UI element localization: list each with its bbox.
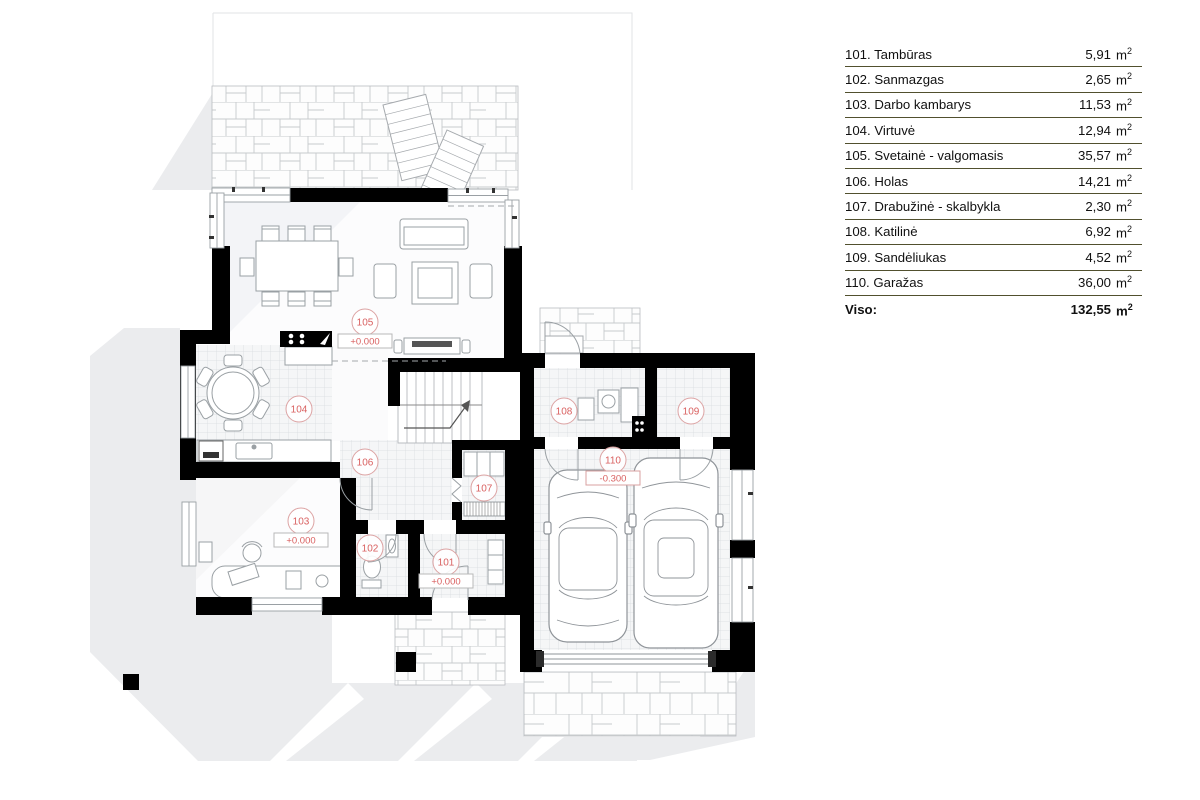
- room-area: 5,91: [1085, 48, 1111, 61]
- cars: [544, 458, 723, 648]
- room-label-107: 107: [471, 475, 497, 501]
- area-unit: m2: [1111, 225, 1142, 240]
- room-area: 36,00: [1078, 276, 1111, 289]
- room-label-109: 109: [678, 398, 704, 424]
- room-number-103: 103: [293, 517, 310, 528]
- room-area: 35,57: [1078, 149, 1111, 162]
- car-1: [544, 470, 632, 642]
- garage-door: [536, 651, 716, 667]
- room-name: 102. Sanmazgas: [845, 73, 944, 86]
- area-unit: m2: [1111, 275, 1142, 290]
- window-office-left: [182, 502, 196, 566]
- driveway: [524, 672, 736, 736]
- elevation-105: +0.000: [350, 337, 379, 348]
- area-unit: m2: [1111, 174, 1142, 189]
- room-name: 105. Svetainė - valgomasis: [845, 149, 1003, 162]
- area-unit: m2: [1111, 303, 1142, 318]
- room-number-102: 102: [362, 544, 379, 555]
- room-label-108: 108: [551, 398, 577, 424]
- room-area: 12,94: [1078, 124, 1111, 137]
- room-number-101: 101: [438, 558, 455, 569]
- area-table: 101. Tambūras 5,91 m2 102. Sanmazgas 2,6…: [845, 42, 1142, 324]
- room-name: 101. Tambūras: [845, 48, 932, 61]
- area-table-row: 109. Sandėliukas 4,52 m2: [845, 245, 1142, 270]
- room-number-107: 107: [476, 484, 493, 495]
- room-name: 106. Holas: [845, 175, 908, 188]
- area-unit: m2: [1111, 98, 1142, 113]
- stairs: [398, 368, 482, 443]
- room-area: 6,92: [1085, 225, 1111, 238]
- area-table-row: 106. Holas 14,21 m2: [845, 169, 1142, 194]
- area-table-row: 107. Drabužinė - skalbykla 2,30 m2: [845, 194, 1142, 219]
- window-living-left: [210, 193, 224, 248]
- room-number-110: 110: [605, 456, 621, 467]
- door-bifold-107: [452, 478, 461, 502]
- car-2: [629, 458, 723, 648]
- window-kitchen: [181, 366, 195, 438]
- window-garage-2: [732, 558, 753, 622]
- window-living-corner-right: [505, 200, 519, 248]
- area-table-row: 104. Virtuvė 12,94 m2: [845, 118, 1142, 143]
- room-number-108: 108: [556, 407, 573, 418]
- room-label-106: 106: [352, 449, 378, 475]
- total-area: 132,55: [1071, 303, 1111, 316]
- elevation-110: -0.300: [600, 474, 627, 485]
- room-number-109: 109: [683, 407, 700, 418]
- elevation-101: +0.000: [431, 577, 460, 588]
- room-area: 2,30: [1085, 200, 1111, 213]
- floor-plan-page: 101 +0.000 102 103 +0.000 104 105 +0.000…: [0, 0, 1200, 800]
- terrace-top: [212, 86, 518, 190]
- room-name: 103. Darbo kambarys: [845, 98, 971, 111]
- room-number-104: 104: [291, 405, 308, 416]
- room-name: 108. Katilinė: [845, 225, 918, 238]
- area-unit: m2: [1111, 199, 1142, 214]
- total-label: Viso:: [845, 303, 877, 316]
- area-table-row: 102. Sanmazgas 2,65 m2: [845, 67, 1142, 92]
- area-unit: m2: [1111, 148, 1142, 163]
- room-label-102: 102: [357, 535, 383, 561]
- entry-closet: [488, 540, 503, 584]
- area-unit: m2: [1111, 72, 1142, 87]
- elevation-103: +0.000: [286, 536, 315, 547]
- room-area: 11,53: [1079, 98, 1111, 111]
- area-table-row: 101. Tambūras 5,91 m2: [845, 42, 1142, 67]
- area-table-row: 103. Darbo kambarys 11,53 m2: [845, 93, 1142, 118]
- room-name: 104. Virtuvė: [845, 124, 915, 137]
- room-name: 107. Drabužinė - skalbykla: [845, 200, 1000, 213]
- room-area: 4,52: [1085, 251, 1111, 264]
- window-garage-1: [732, 470, 753, 540]
- room-name: 110. Garažas: [845, 276, 923, 289]
- area-unit: m2: [1111, 47, 1142, 62]
- back-porch: [540, 308, 640, 354]
- area-table-total-row: Viso: 132,55 m2: [845, 296, 1142, 324]
- room-number-106: 106: [357, 458, 374, 469]
- area-table-row: 110. Garažas 36,00 m2: [845, 271, 1142, 296]
- area-table-row: 105. Svetainė - valgomasis 35,57 m2: [845, 144, 1142, 169]
- area-table-row: 108. Katilinė 6,92 m2: [845, 220, 1142, 245]
- entry-porch: [395, 612, 505, 685]
- room-label-104: 104: [286, 396, 312, 422]
- area-unit: m2: [1111, 123, 1142, 138]
- window-living-corner-top: [448, 189, 508, 202]
- room-area: 14,21: [1078, 175, 1111, 188]
- room-number-105: 105: [357, 318, 374, 329]
- window-office-bottom: [252, 598, 322, 611]
- room-name: 109. Sandėliukas: [845, 251, 946, 264]
- room-area: 2,65: [1085, 73, 1111, 86]
- area-unit: m2: [1111, 250, 1142, 265]
